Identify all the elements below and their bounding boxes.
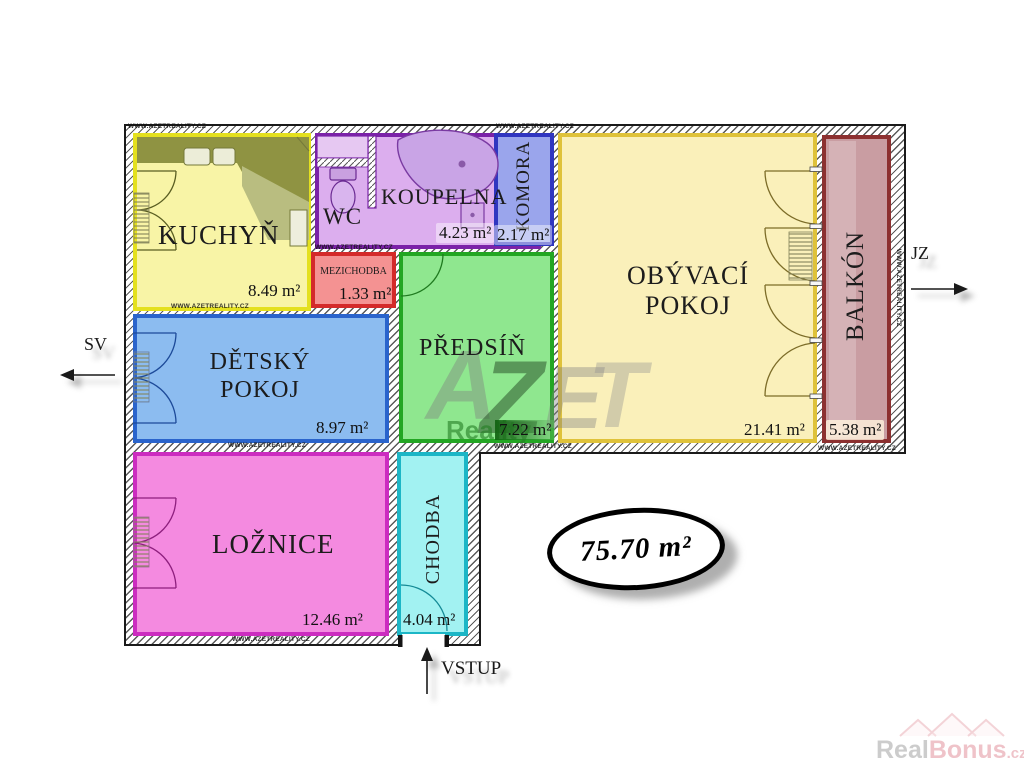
houses-icon xyxy=(872,710,1022,738)
room-area-kuchyn: 8.49 m² xyxy=(248,281,300,301)
compass-jz-label: JZ xyxy=(911,243,929,264)
realbonus-wordmark: RealBonus.cz xyxy=(876,736,1024,765)
room-area-detsky: 8.97 m² xyxy=(316,418,368,438)
floor-plan: A Z E T Reality WWW.AZETREALITY.CZ WWW.A… xyxy=(0,0,1024,768)
wall-url-text: WWW.AZETREALITY.CZ xyxy=(818,446,896,453)
brand-pink: Bonus xyxy=(929,736,1007,764)
sv-arrow-icon xyxy=(60,362,122,388)
brand-gray: Real xyxy=(876,736,929,764)
room-area-obyvaci: 21.41 m² xyxy=(744,420,805,440)
room-label-obyvaci: OBÝVACÍ POKOJ xyxy=(613,261,763,321)
room-area-loznice: 12.46 m² xyxy=(302,610,363,630)
room-area-mezichodba: 1.33 m² xyxy=(339,284,391,304)
wall-url-text: WWW.AZETREALITY.CZ xyxy=(232,637,310,644)
room-label-predsin: PŘEDSÍŇ xyxy=(419,335,526,363)
jz-arrow-icon xyxy=(906,276,968,302)
compass-sv-label: SV xyxy=(84,334,107,355)
wall-url-text: WWW.AZETREALITY.CZ xyxy=(315,245,393,252)
room-area-chodba: 4.04 m² xyxy=(403,610,455,630)
room-label-koupelna: KOUPELNA xyxy=(381,184,508,209)
wall-url-text: WWW.AZETREALITY.CZ xyxy=(894,249,901,334)
wall-url-text: WWW.AZETREALITY.CZ xyxy=(128,124,206,131)
room-label-wc: WC xyxy=(323,204,362,230)
room-area-koupelna: 4.23 m² xyxy=(436,223,494,243)
entrance-label: VSTUP xyxy=(441,658,501,680)
realbonus-logo: RealBonus.cz xyxy=(872,710,1022,766)
room-label-chodba: CHODBA xyxy=(422,474,444,604)
wall-url-text: WWW.AZETREALITY.CZ xyxy=(494,444,572,451)
room-area-balkon: 5.38 m² xyxy=(826,420,884,440)
room-label-balkon: BALKÓN xyxy=(842,201,870,371)
entrance-arrow-icon xyxy=(414,647,442,697)
total-area-badge: 75.70 m² xyxy=(545,503,727,594)
total-area-value: 75.70 m² xyxy=(579,530,692,569)
room-area-komora: 2.17 m² xyxy=(494,225,552,245)
room-label-kuchyn: KUCHYŇ xyxy=(158,220,280,251)
brand-tld: .cz xyxy=(1007,745,1024,762)
wall-url-text: WWW.AZETREALITY.CZ xyxy=(496,124,574,131)
room-label-detsky: DĚTSKÝ POKOJ xyxy=(190,349,330,404)
room-label-loznice: LOŽNICE xyxy=(212,529,334,560)
room-label-mezichodba: MEZICHODBA xyxy=(313,266,394,278)
wall-url-text: WWW.AZETREALITY.CZ xyxy=(171,304,249,311)
wall-url-text: WWW.AZETREALITY.CZ xyxy=(228,443,306,450)
room-area-predsin: 7.22 m² xyxy=(495,420,555,440)
